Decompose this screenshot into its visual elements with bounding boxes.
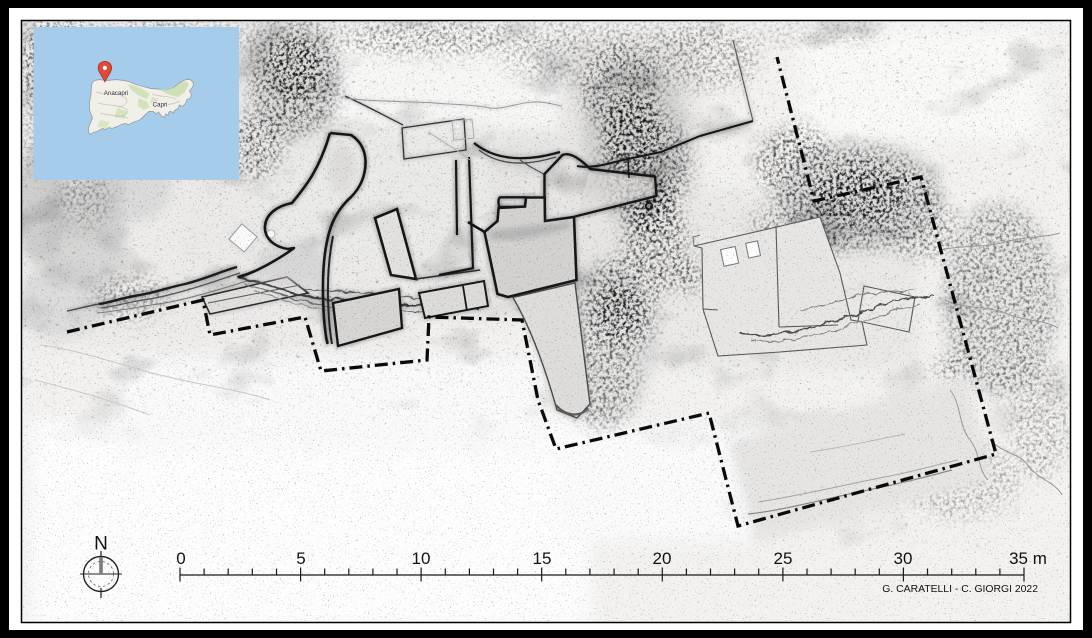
svg-text:0: 0 xyxy=(176,549,185,568)
svg-text:25: 25 xyxy=(774,549,793,568)
svg-text:Anacapri: Anacapri xyxy=(104,90,128,97)
svg-text:5: 5 xyxy=(296,549,305,568)
svg-text:G. CARATELLI - C. GIORGI 2022: G. CARATELLI - C. GIORGI 2022 xyxy=(882,584,1038,595)
svg-text:20: 20 xyxy=(653,549,672,568)
svg-text:30: 30 xyxy=(894,549,913,568)
svg-text:10: 10 xyxy=(412,549,431,568)
svg-text:35 m: 35 m xyxy=(1009,549,1047,568)
svg-text:Capri: Capri xyxy=(153,102,168,109)
svg-text:15: 15 xyxy=(533,549,552,568)
